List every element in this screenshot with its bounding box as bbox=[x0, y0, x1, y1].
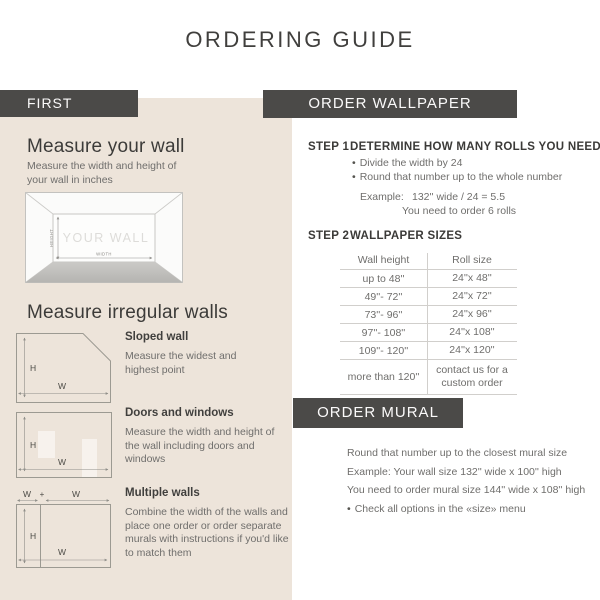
bullet-dot: • bbox=[347, 503, 351, 515]
h-label: H bbox=[30, 363, 36, 373]
wall-height-cell: 97''- 108'' bbox=[340, 327, 427, 339]
sloped-wall-title: Sloped wall bbox=[125, 331, 267, 343]
wall-height-cell: more than 120'' bbox=[340, 371, 427, 383]
step1-bullet-list: •Divide the width by 24 •Round that numb… bbox=[352, 156, 562, 184]
order-wallpaper-header: ORDER WALLPAPER bbox=[263, 90, 517, 118]
step1-label: STEP 1 bbox=[308, 141, 350, 153]
w-label-right: W bbox=[72, 489, 80, 499]
step2-title: WALLPAPER SIZES bbox=[350, 230, 462, 242]
table-row: more than 120'' contact us for a custom … bbox=[340, 360, 517, 395]
ordering-guide-page: ORDERING GUIDE FIRST ORDER WALLPAPER ORD… bbox=[0, 0, 600, 600]
roll-size-cell: 24''x 96'' bbox=[427, 308, 517, 321]
table-column-divider bbox=[427, 253, 428, 395]
multiple-walls-section: Multiple walls Combine the width of the … bbox=[125, 487, 297, 560]
w-label-left: W bbox=[23, 489, 31, 499]
bullet-dot: • bbox=[352, 171, 356, 183]
order-mural-header: ORDER MURAL bbox=[293, 398, 463, 428]
w-label-bottom: W bbox=[58, 547, 66, 557]
doors-windows-diagram: H W bbox=[16, 412, 112, 478]
h-label: H bbox=[30, 440, 36, 450]
first-header: FIRST bbox=[0, 90, 138, 117]
table-header-row: Wall height Roll size bbox=[340, 251, 517, 270]
measure-wall-description: Measure the width and height of your wal… bbox=[27, 160, 187, 187]
wallpaper-size-table: Wall height Roll size up to 48'' 24''x 4… bbox=[340, 251, 517, 395]
door-shape bbox=[82, 439, 97, 477]
table-row: up to 48'' 24''x 48'' bbox=[340, 270, 517, 288]
step2-row: STEP 2WALLPAPER SIZES bbox=[308, 230, 462, 242]
page-title: ORDERING GUIDE bbox=[0, 27, 600, 53]
step1-bullet: •Divide the width by 24 bbox=[352, 156, 562, 170]
mural-line: You need to order mural size 144'' wide … bbox=[347, 481, 585, 500]
step1-example: Example:132'' wide / 24 = 5.5 bbox=[360, 191, 505, 203]
table-row: 73''- 96'' 24''x 96'' bbox=[340, 306, 517, 324]
example-value: 132'' wide / 24 = 5.5 bbox=[412, 191, 505, 203]
w-label: W bbox=[58, 457, 66, 467]
wall-diagram-label: YOUR WALL bbox=[63, 231, 150, 245]
wall-height-cell: up to 48'' bbox=[340, 273, 427, 285]
table-row: 49''- 72'' 24''x 72'' bbox=[340, 288, 517, 306]
roll-size-cell: contact us for a custom order bbox=[427, 364, 517, 390]
mural-bullet-line: •Check all options in the «size» menu bbox=[347, 500, 585, 519]
sloped-wall-description: Measure the widest and highest point bbox=[125, 350, 267, 377]
order-mural-text: Round that number up to the closest mura… bbox=[347, 444, 585, 518]
multiple-walls-diagram: W + W H W bbox=[16, 486, 111, 570]
multiple-walls-title: Multiple walls bbox=[125, 487, 297, 499]
wall-height-cell: 49''- 72'' bbox=[340, 291, 427, 303]
sloped-wall-diagram: H W bbox=[16, 333, 111, 403]
width-label: WIDTH bbox=[96, 252, 112, 257]
mural-line: Example: Your wall size 132'' wide x 100… bbox=[347, 463, 585, 482]
roll-size-cell: 24''x 108'' bbox=[427, 326, 517, 339]
wall-height-cell: 109''- 120'' bbox=[340, 345, 427, 357]
roll-size-cell: 24''x 48'' bbox=[427, 272, 517, 285]
doors-windows-section: Doors and windows Measure the width and … bbox=[125, 407, 277, 467]
irregular-walls-heading: Measure irregular walls bbox=[27, 302, 228, 324]
measure-wall-heading: Measure your wall bbox=[27, 136, 185, 158]
floor bbox=[26, 262, 183, 283]
mural-line: Round that number up to the closest mura… bbox=[347, 444, 585, 463]
plus-sign: + bbox=[40, 490, 45, 499]
bullet-dot: • bbox=[352, 157, 356, 169]
example-result: You need to order 6 rolls bbox=[402, 205, 516, 217]
multiple-walls-description: Combine the width of the walls and place… bbox=[125, 506, 297, 560]
roll-size-cell: 24''x 72'' bbox=[427, 290, 517, 303]
step1-title: DETERMINE HOW MANY ROLLS YOU NEED bbox=[350, 141, 600, 153]
wall-height-cell: 73''- 96'' bbox=[340, 309, 427, 321]
doors-windows-title: Doors and windows bbox=[125, 407, 277, 419]
step1-bullet: •Round that number up to the whole numbe… bbox=[352, 170, 562, 184]
step1-row: STEP 1DETERMINE HOW MANY ROLLS YOU NEED bbox=[308, 141, 600, 153]
roll-size-cell: 24''x 120'' bbox=[427, 344, 517, 357]
wall-height-header: Wall height bbox=[340, 254, 427, 266]
example-label: Example: bbox=[360, 191, 412, 203]
step2-label: STEP 2 bbox=[308, 230, 350, 242]
doors-windows-description: Measure the width and height of the wall… bbox=[125, 426, 277, 467]
roll-size-header: Roll size bbox=[427, 254, 517, 267]
wall-diagram: YOUR WALL HEIGHT WIDTH bbox=[25, 192, 183, 283]
sloped-wall-section: Sloped wall Measure the widest and highe… bbox=[125, 331, 267, 377]
height-label: HEIGHT bbox=[49, 229, 54, 247]
w-label: W bbox=[58, 381, 66, 391]
table-row: 109''- 120'' 24''x 120'' bbox=[340, 342, 517, 360]
window-shape bbox=[38, 431, 55, 458]
h-label: H bbox=[30, 531, 36, 541]
table-row: 97''- 108'' 24''x 108'' bbox=[340, 324, 517, 342]
